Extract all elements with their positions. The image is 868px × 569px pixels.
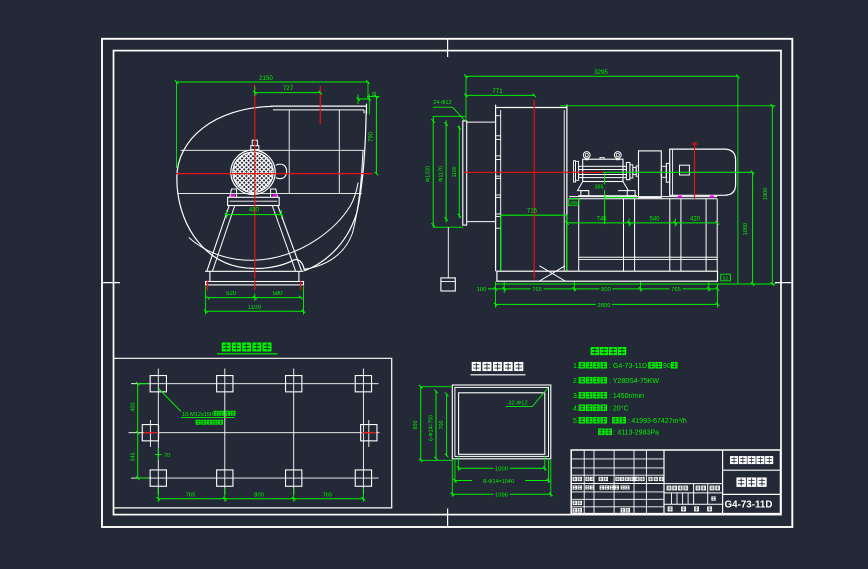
svg-text::: : <box>609 418 611 425</box>
svg-text:400: 400 <box>130 403 136 412</box>
svg-text:1.: 1. <box>573 363 579 370</box>
svg-text:2150: 2150 <box>259 75 273 82</box>
svg-text:540: 540 <box>649 216 660 222</box>
svg-text:745: 745 <box>596 216 607 222</box>
svg-text:1000: 1000 <box>495 467 508 473</box>
svg-text:1100: 1100 <box>452 166 458 177</box>
svg-text:1096: 1096 <box>495 493 508 499</box>
svg-text:345: 345 <box>130 453 136 462</box>
svg-text:700: 700 <box>439 421 445 430</box>
svg-text:: Y280S4-75KW: : Y280S4-75KW <box>609 378 659 385</box>
svg-text:765: 765 <box>532 287 542 293</box>
svg-text:1100: 1100 <box>248 305 262 311</box>
svg-text:385: 385 <box>595 185 604 191</box>
svg-text:2.: 2. <box>573 378 579 385</box>
svg-text:305: 305 <box>570 200 578 205</box>
svg-text:3.: 3. <box>573 393 579 400</box>
svg-text:Φ1320: Φ1320 <box>426 166 432 182</box>
svg-text:800: 800 <box>601 287 611 293</box>
svg-text:5.: 5. <box>573 418 579 425</box>
svg-text:6-Φ14=700: 6-Φ14=700 <box>429 415 435 441</box>
svg-text:1060: 1060 <box>743 223 749 235</box>
svg-text:52: 52 <box>723 275 729 281</box>
svg-text:520: 520 <box>226 291 237 297</box>
svg-text:765: 765 <box>671 287 681 293</box>
svg-text:771: 771 <box>492 88 503 95</box>
svg-text:727: 727 <box>283 85 294 92</box>
svg-text:24-Φ12: 24-Φ12 <box>433 100 451 106</box>
svg-text:715: 715 <box>527 209 538 215</box>
svg-text:4.: 4. <box>573 406 579 413</box>
svg-text:580: 580 <box>272 291 283 297</box>
svg-text:2800: 2800 <box>598 303 611 309</box>
svg-text:3295: 3295 <box>594 69 608 76</box>
svg-text:32-Φ12: 32-Φ12 <box>508 400 527 406</box>
svg-text:90: 90 <box>663 363 671 370</box>
svg-text:800: 800 <box>254 492 264 498</box>
svg-text:850: 850 <box>413 421 419 430</box>
svg-text:: 1450r/min: : 1450r/min <box>609 393 644 400</box>
svg-text:480: 480 <box>249 208 260 214</box>
svg-text:: 4113-2983Pa: : 4113-2983Pa <box>614 430 660 437</box>
svg-text:: G4-73-11D: : G4-73-11D <box>609 363 647 370</box>
svg-text:Φ1170: Φ1170 <box>439 166 445 182</box>
svg-text:: 20°C: : 20°C <box>609 405 629 413</box>
svg-text:70: 70 <box>164 453 170 459</box>
svg-text:790: 790 <box>368 131 374 142</box>
svg-text:765: 765 <box>186 492 196 498</box>
svg-text:100: 100 <box>477 287 487 293</box>
svg-text:: 41993-67427m³/h: : 41993-67427m³/h <box>628 418 687 425</box>
svg-text:10-M12x150: 10-M12x150 <box>182 412 213 418</box>
svg-text:420: 420 <box>690 216 701 222</box>
svg-text:1900: 1900 <box>763 188 769 200</box>
svg-text:G4-73-11D: G4-73-11D <box>725 499 773 510</box>
svg-text:8-Φ14=1040: 8-Φ14=1040 <box>483 479 514 485</box>
svg-text:765: 765 <box>323 492 333 498</box>
